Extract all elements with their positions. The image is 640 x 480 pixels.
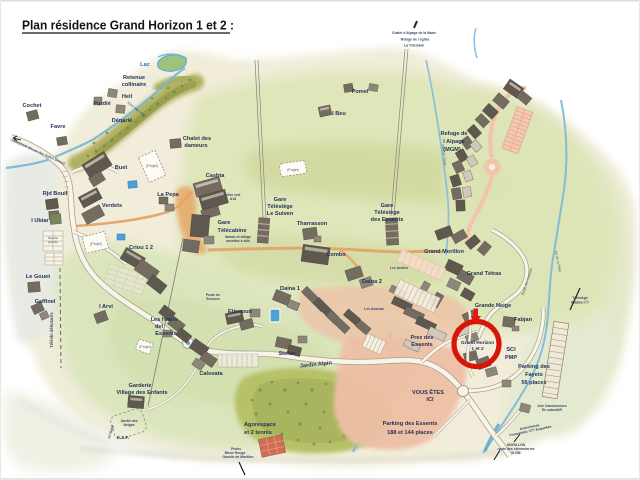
svg-text:PMP: PMP [505, 355, 517, 361]
svg-text:Refuge de: Refuge de [440, 131, 467, 137]
svg-text:Chalet des: Chalet des [183, 136, 211, 142]
svg-text:Buet: Buet [115, 165, 128, 171]
svg-text:Plan résidence Grand Horizon 1: Plan résidence Grand Horizon 1 et 2 : [22, 18, 234, 33]
svg-text:A18: A18 [230, 197, 236, 201]
svg-text:(Projet): (Projet) [90, 242, 102, 246]
svg-text:Rjd Bouil: Rjd Bouil [43, 191, 68, 197]
svg-text:Retenue: Retenue [123, 75, 145, 81]
svg-text:Lac: Lac [140, 62, 150, 68]
svg-text:(Projet): (Projet) [146, 164, 158, 168]
svg-text:Le Gouet: Le Gouet [26, 274, 50, 280]
svg-text:Grand Horizon: Grand Horizon [461, 340, 494, 346]
svg-text:Gare: Gare [218, 220, 231, 226]
svg-text:1 et 2: 1 et 2 [471, 346, 484, 352]
svg-text:La Pepa: La Pepa [157, 192, 179, 198]
svg-text:Les Arolles: Les Arolles [390, 266, 408, 270]
svg-text:Télésiège: Télésiège [267, 204, 293, 210]
svg-text:Prez des: Prez des [410, 335, 433, 341]
svg-text:Les Acacias: Les Acacias [364, 307, 384, 311]
svg-text:del: del [155, 324, 164, 330]
svg-text:Le Suiven: Le Suiven [267, 211, 294, 217]
svg-text:Cashta: Cashta [206, 173, 226, 179]
svg-text:Grande Neige: Grande Neige [475, 303, 511, 309]
svg-text:Chalet d Alpage de la Marie: Chalet d Alpage de la Marie [392, 31, 436, 35]
svg-text:Secours: Secours [206, 297, 219, 301]
svg-text:Télécabine: Télécabine [218, 228, 247, 234]
svg-text:I Beu: I Beu [332, 111, 346, 117]
svg-text:et 2 tennis: et 2 tennis [244, 430, 272, 436]
svg-text:Daina 2: Daina 2 [362, 279, 382, 285]
svg-text:Grand Morillon: Grand Morillon [424, 249, 464, 255]
svg-text:Refuge de l église: Refuge de l église [401, 38, 430, 42]
svg-text:Calsoata: Calsoata [199, 371, 223, 377]
svg-text:Neiges: Neiges [123, 423, 134, 427]
svg-text:Les Hauts: Les Hauts [151, 317, 178, 323]
svg-text:Criou 1 2: Criou 1 2 [129, 245, 153, 251]
svg-text:Combo: Combo [326, 252, 346, 258]
svg-text:Pomel: Pomel [352, 89, 369, 95]
svg-text:Gare: Gare [274, 197, 287, 203]
svg-text:N 256: N 256 [511, 451, 520, 455]
svg-text:Purdié: Purdié [93, 101, 110, 107]
svg-text:I Ubiar: I Ubiar [31, 218, 49, 224]
svg-text:Essents: Essents [155, 331, 176, 337]
svg-text:Daina 1: Daina 1 [280, 286, 300, 292]
svg-text:Fayets: Fayets [525, 372, 543, 378]
svg-text:dameurs: dameurs [184, 143, 207, 149]
svg-text:Gazelle de Morillon: Gazelle de Morillon [223, 455, 254, 459]
svg-text:Téléski débutants: Téléski débutants [49, 312, 54, 348]
svg-text:Dénarié: Dénarié [112, 118, 133, 124]
svg-text:navettes à skis: navettes à skis [226, 239, 250, 243]
svg-text:Tharrasson: Tharrasson [297, 221, 328, 227]
svg-text:En cabosKR: En cabosKR [542, 408, 563, 412]
svg-text:Gaffinel: Gaffinel [35, 299, 56, 305]
svg-text:collinaire: collinaire [122, 82, 147, 88]
svg-text:La Télemark: La Télemark [404, 44, 424, 48]
svg-text:Télésiège: Télésiège [374, 210, 400, 216]
svg-text:Agorespace: Agorespace [244, 422, 276, 428]
svg-text:Stefan: Stefan [278, 351, 296, 357]
svg-text:des Essents: des Essents [371, 217, 404, 223]
svg-text:Favre: Favre [51, 124, 66, 130]
svg-text:gratuite: gratuite [48, 240, 58, 244]
svg-text:VOUS ÊTES: VOUS ÊTES [412, 388, 444, 396]
svg-text:Grand Tétras: Grand Tétras [467, 271, 502, 277]
svg-text:Essents: Essents [411, 342, 432, 348]
svg-text:Verdets: Verdets [102, 203, 122, 209]
svg-text:l Alpage: l Alpage [443, 139, 465, 145]
svg-text:(Projet): (Projet) [139, 345, 151, 349]
svg-text:Parking des: Parking des [518, 364, 550, 370]
svg-text:I Arvi: I Arvi [99, 304, 113, 310]
svg-text:Gare: Gare [381, 203, 394, 209]
svg-text:E.S.F.: E.S.F. [117, 435, 129, 440]
svg-text:(Projet): (Projet) [287, 168, 299, 172]
svg-text:Parking des Essents: Parking des Essents [383, 421, 438, 427]
svg-text:Garderie: Garderie [128, 383, 151, 389]
svg-text:Fabjan: Fabjan [514, 317, 533, 323]
svg-text:Heil: Heil [122, 94, 133, 100]
svg-text:Village des Enfants: Village des Enfants [116, 390, 167, 396]
svg-text:188 et 144 places: 188 et 144 places [387, 430, 433, 436]
svg-text:Etienoun: Etienoun [228, 309, 253, 315]
svg-text:Cochet: Cochet [23, 103, 42, 109]
svg-text:56 places: 56 places [521, 380, 546, 386]
svg-text:SCI: SCI [506, 347, 516, 353]
svg-text:ICI: ICI [426, 397, 434, 403]
